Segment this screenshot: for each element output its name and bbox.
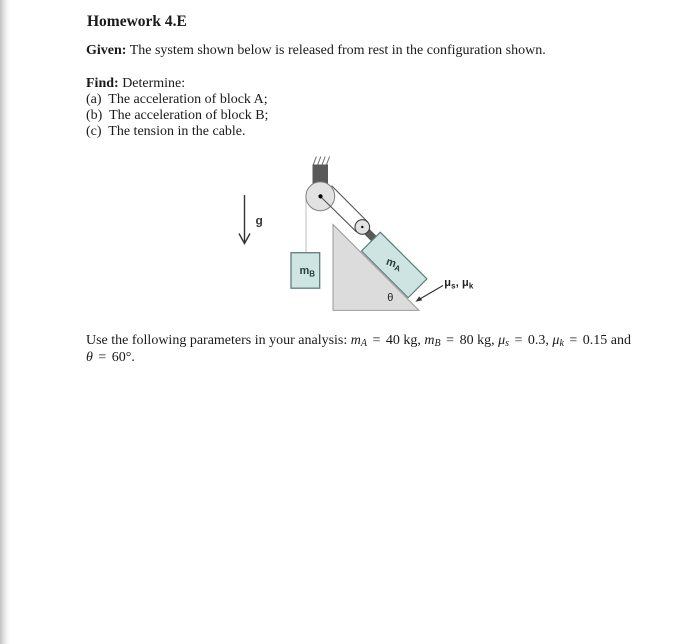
svg-text:μs, μk: μs, μk bbox=[444, 277, 474, 290]
svg-text:θ: θ bbox=[387, 292, 393, 304]
svg-text:g: g bbox=[256, 214, 263, 228]
